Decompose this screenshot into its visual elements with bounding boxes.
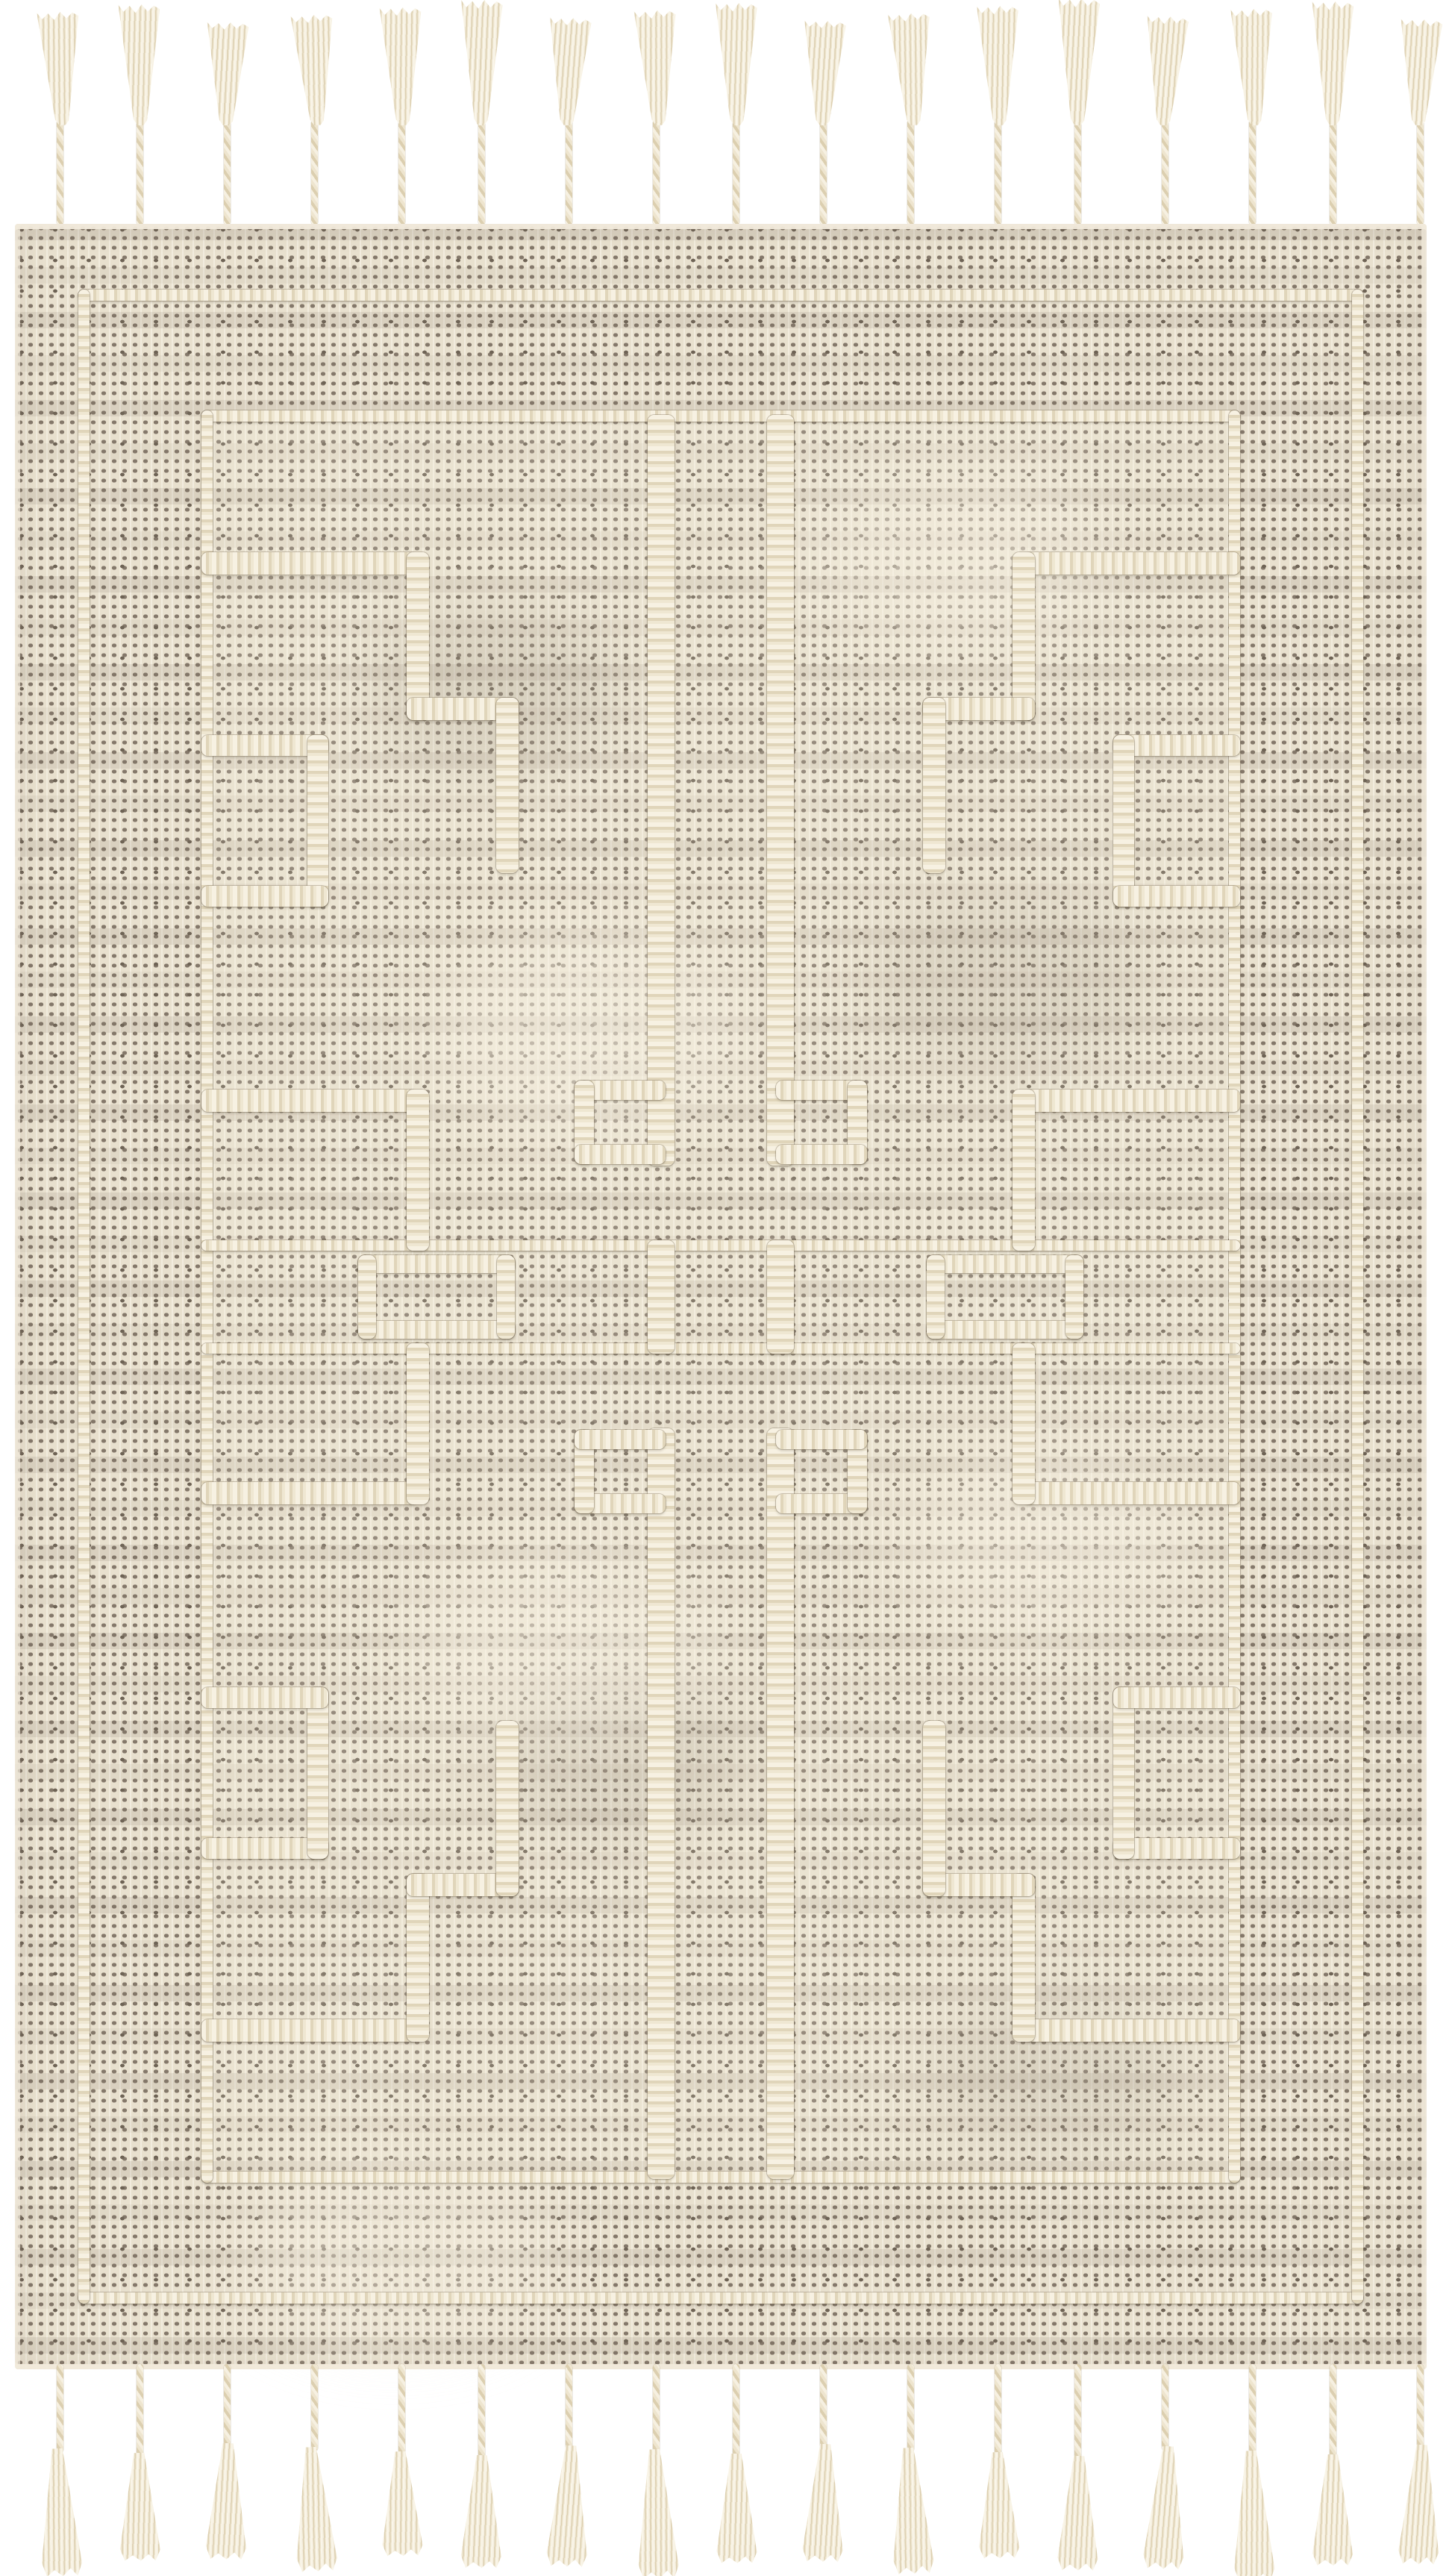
braid-segment bbox=[1024, 1482, 1240, 1504]
tassel-tuft bbox=[379, 2451, 425, 2556]
braid-segment bbox=[78, 290, 1363, 301]
tassel-bottom bbox=[1142, 2364, 1189, 2576]
tassel-cord bbox=[1249, 2364, 1256, 2455]
rug-product-photo bbox=[0, 0, 1452, 2576]
tassel-top bbox=[713, 7, 760, 231]
tassel-bottom bbox=[378, 2364, 425, 2576]
braid-segment bbox=[1229, 410, 1240, 2183]
braid-segment bbox=[923, 698, 945, 873]
braid-segment bbox=[1013, 1090, 1035, 1251]
braid-segment bbox=[648, 1428, 675, 2179]
tassel-tuft bbox=[1311, 1, 1355, 125]
tassel-cord bbox=[137, 2364, 143, 2457]
tassel-cord bbox=[1162, 119, 1168, 225]
tassel-tuft bbox=[379, 7, 425, 125]
braid-segment bbox=[201, 1090, 418, 1112]
braid-segment bbox=[1065, 1255, 1083, 1339]
tassel-cord bbox=[653, 119, 660, 225]
braid-segment bbox=[201, 1482, 418, 1504]
tassel-bottom bbox=[290, 2364, 338, 2576]
braid-segment bbox=[407, 1090, 429, 1251]
braid-segment bbox=[1013, 552, 1035, 720]
weave-tone-patch bbox=[492, 1679, 746, 1836]
braid-segment bbox=[201, 2172, 1240, 2183]
braid-segment bbox=[767, 1240, 794, 1354]
tassel-cord bbox=[820, 2364, 827, 2448]
braid-segment bbox=[776, 1145, 867, 1164]
braid-segment bbox=[1113, 1687, 1240, 1708]
braid-segment bbox=[1013, 1874, 1035, 2042]
tassel-cord bbox=[995, 119, 1001, 225]
tassel-tuft bbox=[1397, 19, 1444, 126]
tassel-top bbox=[1142, 7, 1189, 231]
tassel-tuft bbox=[460, 0, 504, 125]
tassel-bottom bbox=[545, 2364, 592, 2576]
tassel-top bbox=[378, 7, 425, 231]
braid-segment bbox=[776, 1430, 867, 1449]
tassel-top bbox=[545, 7, 592, 231]
tassel-cord bbox=[907, 119, 914, 225]
tassel-cord bbox=[733, 119, 739, 225]
tassel-bottom bbox=[36, 2364, 84, 2576]
braid-segment bbox=[407, 552, 429, 720]
braid-segment bbox=[575, 1430, 666, 1449]
tassel-tuft bbox=[204, 2442, 250, 2560]
braid-segment bbox=[201, 552, 418, 575]
braid-segment bbox=[1352, 290, 1363, 2304]
tassel-tuft bbox=[545, 2445, 592, 2568]
tassel-tuft bbox=[117, 2452, 161, 2560]
tassel-tuft bbox=[1056, 2456, 1101, 2571]
tassel-cord bbox=[820, 119, 827, 225]
tassel-tuft bbox=[290, 14, 339, 127]
tassel-cord bbox=[478, 2364, 485, 2460]
weave-tone-patch bbox=[239, 2164, 552, 2343]
braid-segment bbox=[1024, 2019, 1240, 2042]
tassel-tuft bbox=[1141, 2445, 1190, 2570]
tassel-bottom bbox=[1309, 2364, 1356, 2576]
braid-segment bbox=[201, 410, 213, 2183]
tassel-cord bbox=[478, 119, 485, 225]
tassel-tuft bbox=[1230, 2450, 1277, 2576]
braid-segment bbox=[78, 2292, 1363, 2304]
tassel-bottom bbox=[1054, 2364, 1102, 2576]
tassel-cord bbox=[1074, 119, 1081, 225]
tassel-tuft bbox=[976, 6, 1021, 126]
tassel-top bbox=[116, 7, 163, 231]
tassel-cord bbox=[1074, 2364, 1081, 2460]
tassel-cord bbox=[398, 119, 405, 225]
tassel-cord bbox=[653, 2364, 660, 2454]
tassel-cord bbox=[907, 2364, 914, 2452]
tassel-bottom bbox=[203, 2364, 251, 2576]
braid-segment bbox=[201, 1687, 328, 1708]
braid-segment bbox=[201, 886, 328, 907]
tassel-tuft bbox=[800, 2443, 846, 2562]
tassel-cord bbox=[1417, 2364, 1424, 2449]
braid-segment bbox=[927, 1321, 1083, 1339]
tassel-bottom bbox=[116, 2364, 163, 2576]
tassel-bottom bbox=[713, 2364, 760, 2576]
tassel-tuft bbox=[976, 2451, 1021, 2558]
braid-segment bbox=[575, 1145, 666, 1164]
braid-segment bbox=[307, 735, 328, 907]
braid-segment bbox=[497, 1255, 515, 1339]
tassel-bottom bbox=[633, 2364, 680, 2576]
tassel-cord bbox=[311, 119, 318, 225]
braid-segment bbox=[648, 1240, 675, 1354]
tassel-cord bbox=[995, 2364, 1001, 2457]
tassel-cord bbox=[311, 2364, 318, 2451]
braid-segment bbox=[407, 1874, 429, 2042]
tassel-cord bbox=[1162, 2364, 1168, 2451]
tassel-bottom bbox=[800, 2364, 848, 2576]
tassel-tuft bbox=[714, 2454, 757, 2563]
tassel-tuft bbox=[1056, 0, 1101, 125]
tassel-top bbox=[1309, 7, 1356, 231]
braid-segment bbox=[358, 1255, 376, 1339]
tassel-bottom bbox=[974, 2364, 1022, 2576]
braid-segment bbox=[496, 698, 519, 873]
tassel-tuft bbox=[886, 2447, 936, 2575]
tassel-cord bbox=[1330, 119, 1336, 225]
tassel-tuft bbox=[545, 17, 593, 126]
tassel-top bbox=[1396, 7, 1444, 231]
tassel-tuft bbox=[714, 3, 758, 125]
braid-segment bbox=[767, 1428, 794, 2179]
weave-tone-patch bbox=[201, 410, 1240, 2183]
braid-segment bbox=[767, 415, 794, 1166]
braid-segment bbox=[496, 1721, 519, 1896]
tassel-top bbox=[457, 7, 505, 231]
braid-segment bbox=[201, 2019, 418, 2042]
tassel-cord bbox=[57, 2364, 63, 2453]
braid-segment bbox=[307, 1687, 328, 1859]
tassel-top bbox=[887, 7, 935, 231]
tassel-cord bbox=[733, 2364, 739, 2458]
weave-tone-patch bbox=[403, 1552, 724, 1739]
tassel-tuft bbox=[117, 4, 161, 126]
tassel-cord bbox=[224, 119, 231, 225]
tassel-bottom bbox=[887, 2364, 935, 2576]
braid-segment bbox=[1024, 552, 1240, 575]
rug-body bbox=[15, 224, 1427, 2369]
weave-tone-patch bbox=[873, 895, 1142, 1067]
braid-segment bbox=[201, 410, 1240, 422]
braid-segment bbox=[1113, 735, 1134, 907]
braid-segment bbox=[923, 1721, 945, 1896]
tassel-tuft bbox=[1311, 2454, 1354, 2566]
tassel-bottom bbox=[457, 2364, 505, 2576]
braid-segment bbox=[78, 290, 90, 2304]
braid-segment bbox=[201, 1343, 1240, 1354]
tassel-cord bbox=[1249, 119, 1256, 225]
braid-segment bbox=[1113, 1687, 1134, 1859]
tassel-tuft bbox=[633, 2449, 680, 2576]
tassel-tuft bbox=[460, 2455, 504, 2569]
tassel-tuft bbox=[36, 2448, 84, 2576]
tassel-cord bbox=[566, 119, 572, 225]
tassel-top bbox=[36, 7, 84, 231]
braid-segment bbox=[1024, 1090, 1240, 1112]
tassel-tuft bbox=[1230, 8, 1276, 126]
tassel-tuft bbox=[633, 10, 680, 126]
braid-segment bbox=[1013, 1343, 1035, 1504]
tassel-cord bbox=[1330, 2364, 1336, 2459]
braid-segment bbox=[201, 1240, 1240, 1251]
tassel-tuft bbox=[1142, 16, 1190, 127]
tassel-tuft bbox=[886, 13, 935, 127]
tassel-bottom bbox=[1229, 2364, 1277, 2576]
tassel-cord bbox=[1417, 119, 1424, 225]
tassel-top bbox=[974, 7, 1022, 231]
tassel-tuft bbox=[36, 11, 84, 126]
tassel-top bbox=[203, 7, 251, 231]
tassel-top bbox=[290, 7, 338, 231]
tassel-cord bbox=[137, 119, 143, 225]
tassel-top bbox=[800, 7, 848, 231]
tassel-tuft bbox=[1396, 2444, 1443, 2565]
tassel-tuft bbox=[290, 2446, 339, 2573]
tassel-top bbox=[1054, 7, 1102, 231]
tassel-bottom bbox=[1396, 2364, 1444, 2576]
braid-segment bbox=[927, 1255, 945, 1339]
braid-segment bbox=[407, 1343, 429, 1504]
braid-segment bbox=[358, 1321, 515, 1339]
tassel-tuft bbox=[801, 20, 847, 126]
tassel-cord bbox=[398, 2364, 405, 2456]
tassel-cord bbox=[224, 2364, 231, 2448]
tassel-tuft bbox=[204, 22, 250, 125]
tassel-cord bbox=[566, 2364, 572, 2450]
braid-segment bbox=[648, 415, 675, 1166]
tassel-cord bbox=[57, 119, 63, 225]
braid-segment bbox=[1113, 886, 1240, 907]
tassel-top bbox=[1229, 7, 1277, 231]
braid-segment bbox=[358, 1255, 515, 1273]
tassel-top bbox=[633, 7, 680, 231]
braid-segment bbox=[927, 1255, 1083, 1273]
